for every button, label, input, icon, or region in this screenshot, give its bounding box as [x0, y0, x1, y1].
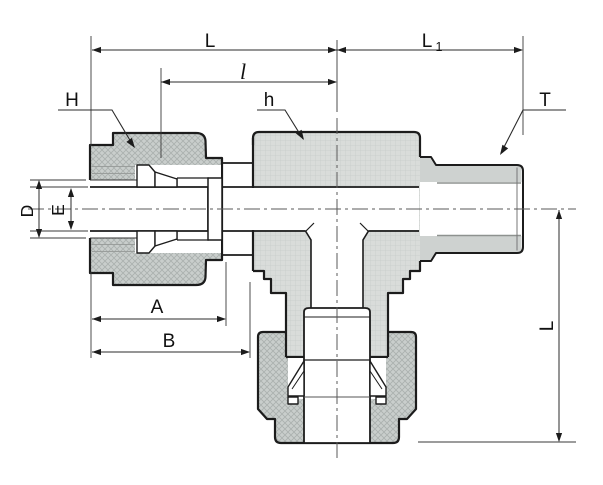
label-L-top: L [205, 31, 216, 52]
label-T-thread: T [539, 90, 551, 111]
drawing-canvas: L L 1 l H h T D E A B L [0, 0, 603, 485]
label-H-nut: H [65, 90, 79, 111]
label-h-body: h [264, 90, 275, 111]
fitting-drawing: L L 1 l H h T D E A B L [0, 0, 603, 485]
label-B-len: B [163, 331, 176, 352]
leader-T [501, 110, 566, 153]
label-l-offset: l [240, 59, 246, 84]
label-A-len: A [151, 297, 164, 318]
label-D-tube: D [17, 205, 37, 218]
label-L-vertical: L [537, 321, 558, 332]
label-E-bore: E [48, 204, 68, 216]
thread-band-top [420, 158, 522, 182]
label-L1: L [422, 31, 433, 52]
thread-band-bottom [420, 236, 522, 260]
label-L1-subscript: 1 [436, 40, 443, 54]
